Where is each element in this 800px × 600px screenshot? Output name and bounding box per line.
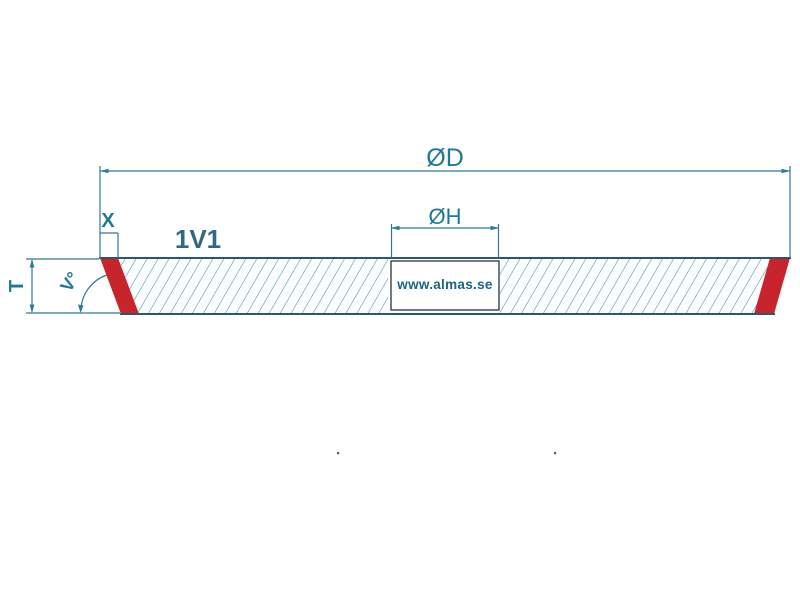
oh-left-arrow-icon — [391, 226, 400, 230]
bore-diameter-label: ØH — [429, 204, 462, 229]
t-bottom-arrow-icon — [30, 305, 35, 314]
abrasive-depth-label: X — [101, 210, 115, 232]
image-specks — [337, 452, 556, 454]
oh-right-arrow-icon — [491, 226, 500, 230]
grinding-wheel-technical-drawing: ØD ØH X T V° 1V1 www.almas.se — [0, 0, 800, 600]
watermark-text: www.almas.se — [396, 277, 493, 292]
drawing-canvas: ØD ØH X T V° 1V1 www.almas.se — [0, 0, 800, 600]
wheel-type-label: 1V1 — [175, 224, 221, 254]
od-left-arrow-icon — [100, 169, 109, 173]
speck-right — [554, 452, 556, 454]
speck-left — [337, 452, 339, 454]
t-top-arrow-icon — [30, 259, 35, 268]
v-angle-arc — [81, 275, 107, 310]
od-right-arrow-icon — [782, 169, 791, 173]
v-arc-arrow-icon — [78, 305, 84, 314]
outer-diameter-label: ØD — [426, 144, 464, 172]
face-angle-label: V° — [56, 268, 83, 295]
thickness-label: T — [6, 280, 28, 292]
